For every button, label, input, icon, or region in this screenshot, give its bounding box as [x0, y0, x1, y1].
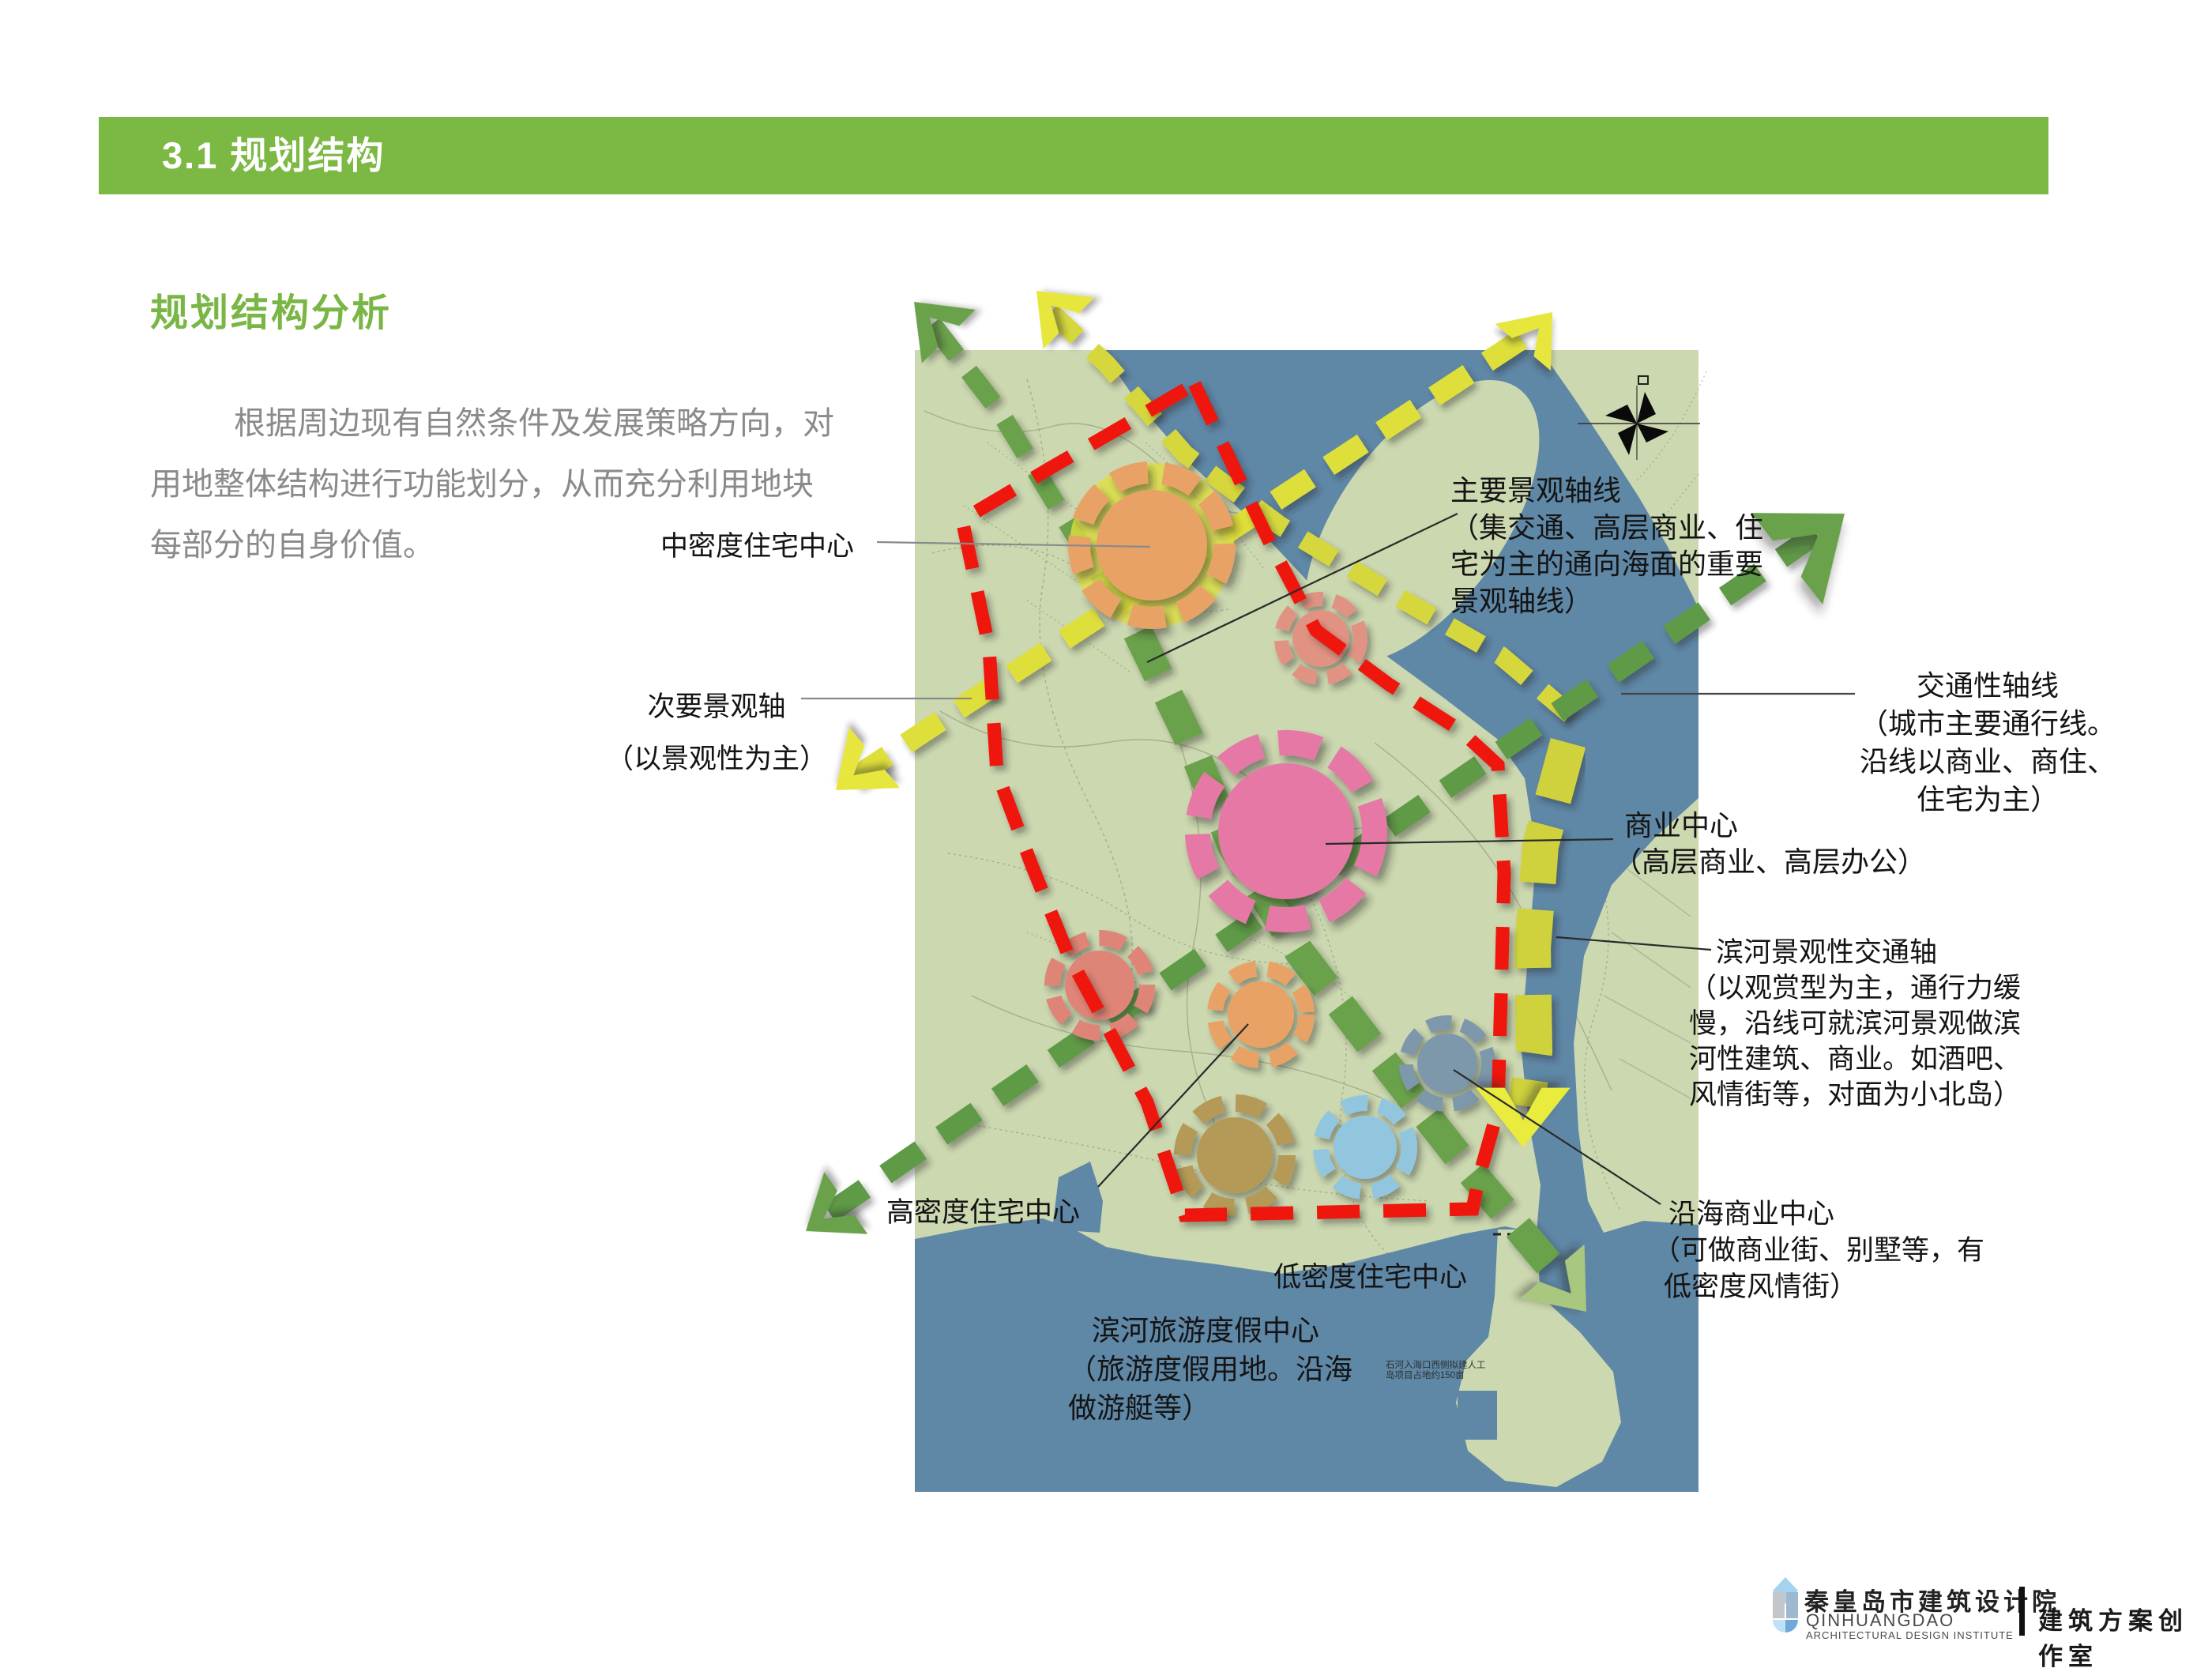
label-riverside-landscape-axis: 滨河景观性交通轴 （以观赏型为主，通行力缓 慢，沿线可就滨河景观做滨 河性建筑、…	[1689, 935, 2021, 1113]
institute-name-en: QINHUANGDAO	[1806, 1610, 1954, 1631]
label-coastal-commercial-center: 沿海商业中心 （可做商业街、别墅等，有 低密度风情街）	[1653, 1196, 1984, 1305]
institute-subtitle-en: ARCHITECTURAL DESIGN INSTITUTE	[1806, 1629, 2014, 1641]
label-secondary-landscape-axis: 次要景观轴 （以景观性为主）	[586, 681, 847, 785]
section-header-bar: 3.1 规划结构	[99, 117, 2048, 194]
logo-divider	[2019, 1587, 2025, 1636]
label-low-density-center: 低密度住宅中心	[1273, 1255, 1467, 1295]
label-island-note: 石河入海口西侧拟建人工 岛项目占地约150亩	[1386, 1361, 1486, 1381]
label-commercial-center: 商业中心 （高层商业、高层办公）	[1613, 808, 1926, 880]
island-harbor-notch	[1458, 1391, 1497, 1440]
arrow-yellow-upleft-icon	[1010, 265, 1094, 348]
section-title: 3.1 规划结构	[162, 117, 385, 194]
institute-logo-icon	[1771, 1577, 1800, 1634]
center-commercial-residential	[1052, 938, 1147, 1033]
intro-heading: 规划结构分析	[150, 281, 392, 337]
label-main-landscape-axis: 主要景观轴线 （集交通、高层商业、住 宅为主的通向海面的重要 景观轴线）	[1450, 473, 1763, 619]
label-traffic-axis: 交通性轴线 （城市主要通行线。 沿线以商业、商住、 住宅为主）	[1838, 667, 2138, 819]
studio-name: 建筑方案创作室	[2038, 1601, 2212, 1672]
label-medium-density-center: 中密度住宅中心	[660, 524, 854, 564]
label-riverside-resort-center: 滨河旅游度假中心 （旅游度假用地。沿海 做游艇等）	[1068, 1312, 1352, 1428]
label-high-density-center: 高密度住宅中心	[886, 1190, 1080, 1230]
